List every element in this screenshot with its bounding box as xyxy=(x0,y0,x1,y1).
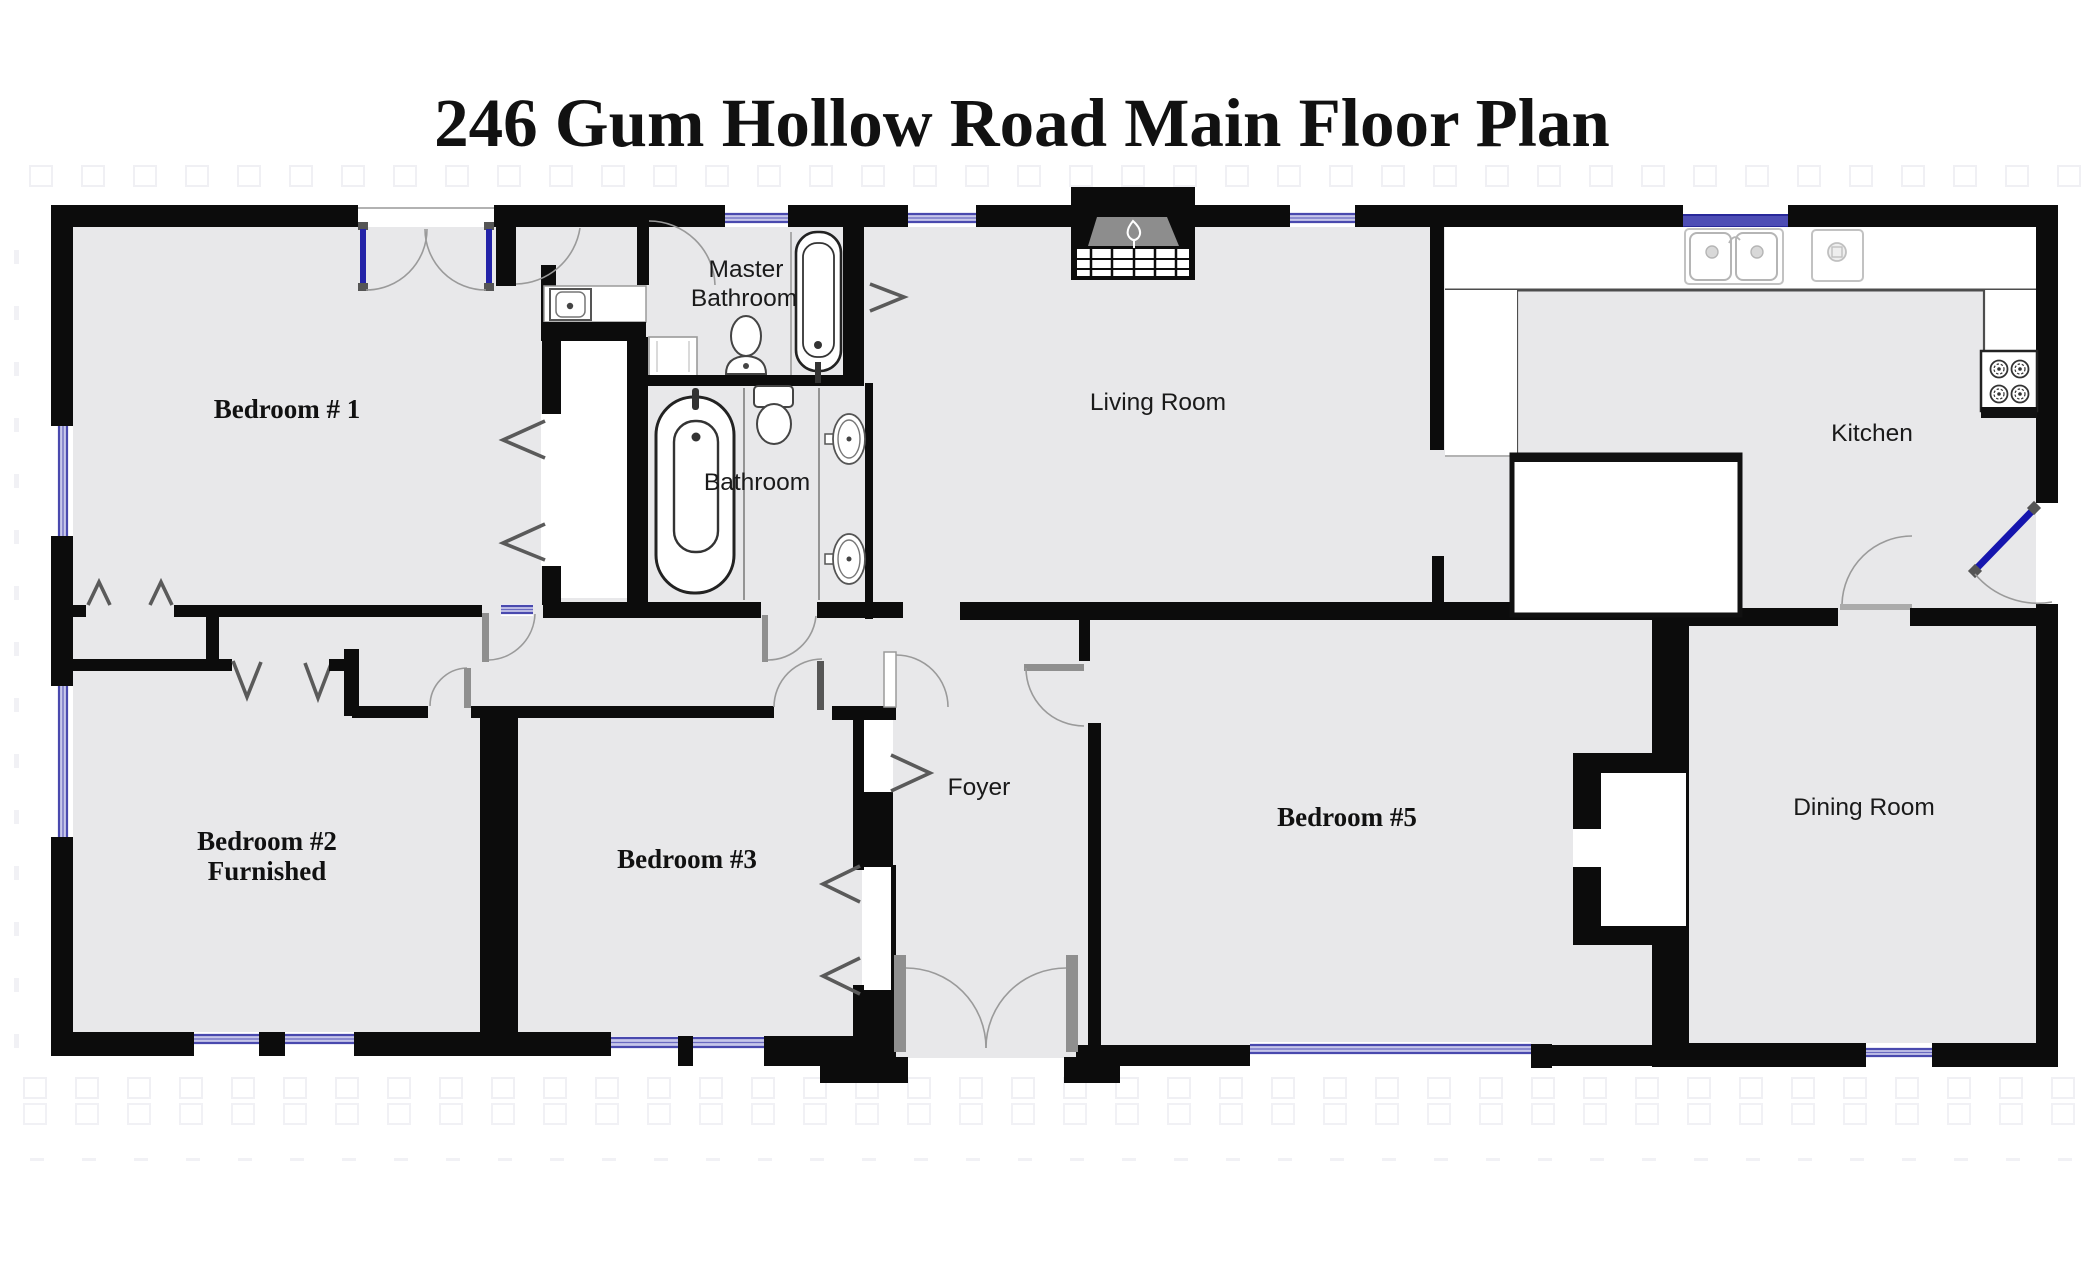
svg-text:Bathroom: Bathroom xyxy=(704,469,810,496)
svg-text:Bathroom: Bathroom xyxy=(691,285,797,312)
svg-text:Bedroom #2: Bedroom #2 xyxy=(197,826,337,856)
svg-text:Foyer: Foyer xyxy=(948,774,1011,801)
svg-text:Bedroom # 1: Bedroom # 1 xyxy=(214,394,361,424)
svg-text:Kitchen: Kitchen xyxy=(1831,420,1913,447)
svg-text:Dining Room: Dining Room xyxy=(1793,794,1935,821)
svg-text:Bedroom #3: Bedroom #3 xyxy=(617,844,757,874)
svg-text:Furnished: Furnished xyxy=(208,856,327,886)
svg-text:246 Gum Hollow Road Main Floor: 246 Gum Hollow Road Main Floor Plan xyxy=(434,85,1610,161)
svg-text:Bedroom #5: Bedroom #5 xyxy=(1277,802,1417,832)
svg-text:Living Room: Living Room xyxy=(1090,389,1226,416)
svg-text:Master: Master xyxy=(709,256,784,283)
